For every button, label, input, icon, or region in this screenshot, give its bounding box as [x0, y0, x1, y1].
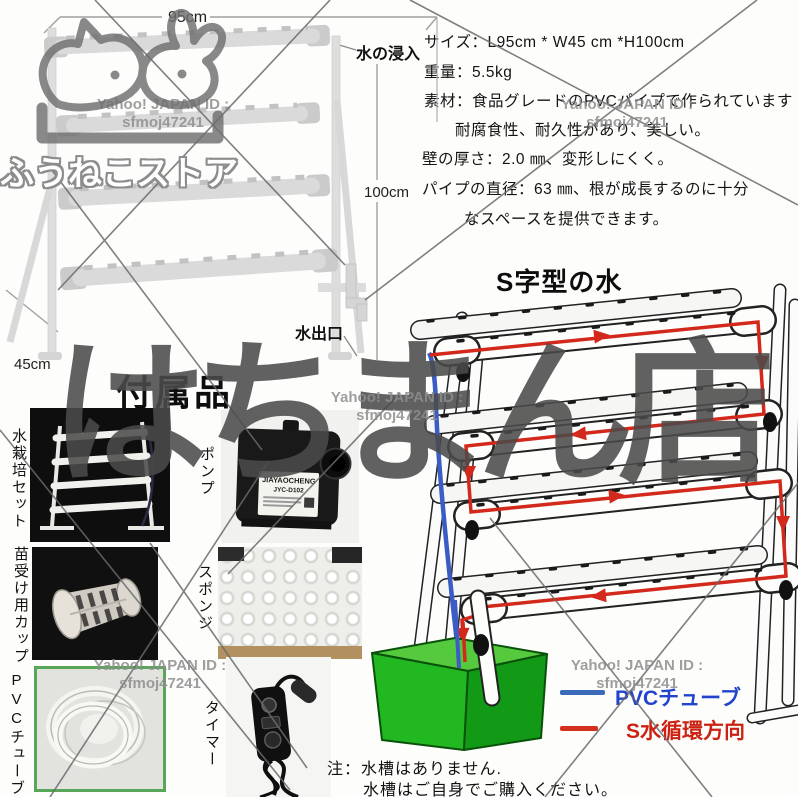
store-rabbit-logo-icon [22, 4, 227, 149]
yahoo-id-line1: Yahoo! JAPAN ID : [547, 657, 727, 675]
product-infographic: 95cm 100cm 45cm 水の浸入 水出口 サイズ：L95cm * W45… [0, 0, 798, 797]
yahoo-id-watermark: Yahoo! JAPAN ID : sfmoj47241 [537, 96, 717, 132]
yahoo-id-line1: Yahoo! JAPAN ID : [307, 389, 487, 407]
yahoo-id-line2: sfmoj47241 [547, 675, 727, 693]
store-name-watermark: ふうねこストア [0, 146, 238, 195]
yahoo-id-line1: Yahoo! JAPAN ID : [70, 657, 250, 675]
yahoo-id-line2: sfmoj47241 [537, 114, 717, 132]
yahoo-id-line1: Yahoo! JAPAN ID : [537, 96, 717, 114]
yahoo-id-watermark: Yahoo! JAPAN ID : sfmoj47241 [70, 657, 250, 693]
yahoo-id-line2: sfmoj47241 [307, 407, 487, 425]
yahoo-id-watermark: Yahoo! JAPAN ID : sfmoj47241 [547, 657, 727, 693]
yahoo-id-line2: sfmoj47241 [70, 675, 250, 693]
yahoo-id-watermark: Yahoo! JAPAN ID : sfmoj47241 [307, 389, 487, 425]
